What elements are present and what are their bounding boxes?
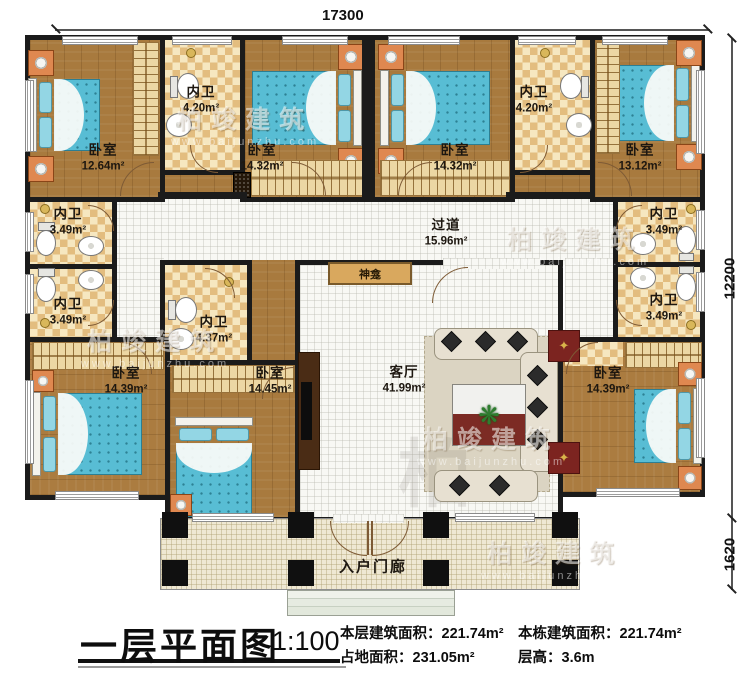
- room-label-corridor: 过道15.96m²: [425, 217, 468, 248]
- star-icon: ✦: [559, 338, 570, 354]
- nightstand: [338, 44, 364, 70]
- room-label-bath-right-1: 内卫3.49m²: [646, 206, 682, 237]
- window: [172, 36, 232, 45]
- porch-pillar: [552, 560, 578, 586]
- window: [282, 36, 348, 45]
- bed: [32, 392, 142, 476]
- porch-pillar: [288, 560, 314, 586]
- floor-plan: ❋ ✦ ✦ 神龛 卧室12.64m² 内卫4.20m² 卧室14.32m² 卧室…: [0, 0, 750, 674]
- shower-head: [540, 48, 550, 58]
- room-label-bath-1: 内卫4.20m²: [183, 84, 219, 115]
- plant-icon: ❋: [478, 402, 500, 428]
- stat-building-area: 本栋建筑面积：221.74m²: [518, 622, 682, 643]
- vestibule-center: [250, 260, 300, 363]
- dimension-line-right: [731, 38, 733, 590]
- entry-door-leaf: [371, 521, 373, 555]
- shower-head: [686, 204, 696, 214]
- dimension-line-top: [55, 29, 710, 31]
- shower-head: [40, 204, 50, 214]
- toilet-bowl: [560, 73, 582, 99]
- window: [25, 80, 34, 152]
- nightstand: [28, 50, 54, 76]
- wall-vestibule-right: [506, 192, 595, 199]
- bed: [634, 388, 702, 464]
- window: [25, 380, 34, 464]
- entry-steps: [287, 590, 455, 616]
- toilet-tank: [679, 253, 694, 261]
- window: [25, 212, 34, 252]
- porch-pier: [288, 512, 314, 538]
- sink: [630, 267, 656, 289]
- entry-door-leaf: [367, 521, 369, 555]
- shrine-label: 神龛: [359, 266, 381, 282]
- shrine-shelf: 神龛: [328, 262, 412, 285]
- room-label-bath-right-2: 内卫3.49m²: [646, 292, 682, 323]
- porch-pier: [162, 512, 188, 538]
- stat-storey-height: 层高：3.6m: [518, 646, 595, 667]
- sink: [166, 113, 192, 137]
- corridor-floor: [112, 197, 624, 265]
- window: [192, 513, 274, 522]
- plan-title: 一层平面图: [80, 616, 280, 670]
- window: [518, 36, 576, 45]
- room-label-bedroom-7: 卧室14.39m²: [587, 365, 630, 396]
- nightstand: [378, 44, 404, 70]
- window: [596, 488, 680, 497]
- window: [696, 272, 705, 312]
- room-label-bath-left-2: 内卫3.49m²: [50, 296, 86, 327]
- star-icon: ✦: [559, 450, 570, 466]
- stat-footprint-area: 占地面积：231.05m²: [340, 646, 475, 667]
- plan-scale: 1:100: [272, 626, 340, 657]
- window: [696, 210, 705, 250]
- sink: [78, 236, 104, 256]
- porch-floor: [160, 518, 580, 590]
- room-label-bath-center: 内卫4.37m²: [196, 314, 232, 345]
- room-label-bedroom-6: 卧室14.45m²: [249, 365, 292, 396]
- room-label-bath-left-1: 内卫3.49m²: [50, 206, 86, 237]
- window: [388, 36, 460, 45]
- room-label-bedroom-5: 卧室14.39m²: [105, 365, 148, 396]
- nightstand: [678, 466, 702, 490]
- coffee-table: ❋: [452, 384, 526, 446]
- nightstand: [28, 156, 54, 182]
- window: [62, 36, 138, 45]
- window: [455, 513, 535, 522]
- corridor-left-leg: [112, 258, 164, 342]
- sink: [168, 328, 194, 350]
- window: [696, 70, 705, 154]
- room-label-bedroom-3: 卧室14.32m²: [434, 142, 477, 173]
- shower-head: [686, 320, 696, 330]
- window: [55, 491, 139, 500]
- bed: [252, 70, 362, 146]
- window: [696, 378, 705, 458]
- room-label-bedroom-1: 卧室12.64m²: [82, 142, 125, 173]
- dimension-label-porch: 1620: [722, 525, 739, 585]
- room-label-porch: 入户门廊: [339, 559, 407, 578]
- dimension-label-side: 12200: [722, 249, 739, 309]
- wardrobe: [596, 42, 620, 154]
- porch-pillar: [423, 560, 449, 586]
- shower-head: [186, 48, 196, 58]
- room-label-bedroom-4: 卧室13.12m²: [619, 142, 662, 173]
- nightstand: [676, 40, 702, 66]
- window: [602, 36, 668, 45]
- bed: [616, 64, 700, 142]
- bed: [380, 70, 490, 146]
- sink: [566, 113, 592, 137]
- wall-vestibule-left: [158, 192, 247, 199]
- nightstand: [32, 370, 54, 392]
- wall-divider: [362, 38, 375, 198]
- side-table: ✦: [548, 442, 580, 474]
- tv: [301, 382, 312, 440]
- porch-pier: [423, 512, 449, 538]
- porch-pier: [552, 512, 578, 538]
- bed: [28, 78, 100, 152]
- wardrobe: [133, 42, 159, 156]
- porch-pillar: [162, 560, 188, 586]
- room-label-bath-2: 内卫4.20m²: [516, 84, 552, 115]
- sink: [78, 270, 104, 290]
- dimension-label-top: 17300: [322, 7, 364, 24]
- room-label-bedroom-2: 卧室14.32m²: [241, 142, 284, 173]
- toilet-tank: [581, 76, 589, 98]
- room-label-living: 客厅41.99m²: [383, 364, 426, 395]
- stat-floor-area: 本层建筑面积：221.74m²: [340, 622, 504, 643]
- toilet-bowl: [175, 297, 197, 323]
- window: [25, 274, 34, 314]
- shower-head: [40, 318, 50, 328]
